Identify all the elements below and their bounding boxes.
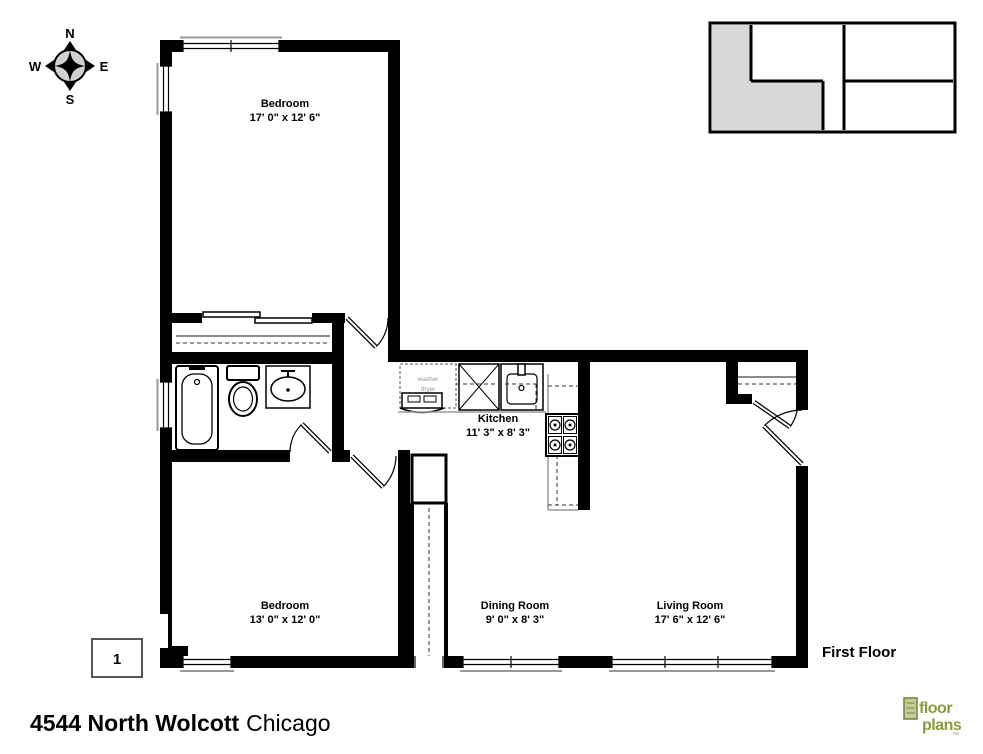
logo-word-floor: floor <box>919 700 952 717</box>
window-living-bottom <box>609 656 775 671</box>
doors <box>290 318 802 487</box>
door-living-closet <box>754 402 798 427</box>
room-label-living: Living Room 17' 6" x 12' 6" <box>655 600 726 626</box>
plan-title: 4544 North WolcottChicago <box>30 710 331 736</box>
floor-label: First Floor <box>822 644 896 661</box>
svg-text:17' 0" x 12' 6": 17' 0" x 12' 6" <box>250 112 321 124</box>
plan-address: 4544 North Wolcott <box>30 710 239 736</box>
page-number: 1 <box>113 651 121 668</box>
svg-text:Bedroom: Bedroom <box>261 98 310 110</box>
compass-arrow-north <box>64 41 76 50</box>
bathroom-fixtures <box>176 365 310 450</box>
wall-hall-stub <box>332 450 350 462</box>
compass-label-s: S <box>66 92 75 107</box>
floorplan-drawing: N S W E <box>0 0 983 754</box>
room-label-dining: Dining Room 9' 0" x 8' 3" <box>481 600 550 626</box>
door-bathroom <box>290 424 330 452</box>
sliding-door-panel <box>203 312 260 317</box>
dryer-label: dryer <box>421 386 437 393</box>
door-bedroom1 <box>347 318 388 347</box>
svg-text:9' 0" x 8' 3": 9' 0" x 8' 3" <box>486 614 544 626</box>
door-entry <box>764 410 802 464</box>
wall-right-upper <box>796 350 808 410</box>
svg-text:Bedroom: Bedroom <box>261 600 310 612</box>
refrigerator <box>459 364 499 410</box>
wall-bedroom1-right <box>388 40 400 362</box>
room-label-bedroom2: Bedroom 13' 0" x 12' 0" <box>250 600 321 626</box>
room-label-kitchen: Kitchen 11' 3" x 8' 3" <box>466 413 530 439</box>
wall-bedroom2-right <box>398 450 410 668</box>
window-bathroom-left <box>158 379 173 431</box>
svg-text:Living Room: Living Room <box>657 600 724 612</box>
wall-bathroom-top <box>172 352 344 364</box>
hall-closet <box>412 455 446 503</box>
window-bedroom2-bottom <box>180 656 234 671</box>
room-label-bedroom1: Bedroom 17' 0" x 12' 6" <box>250 98 321 124</box>
wall-left-slit <box>160 614 168 648</box>
compass-label-e: E <box>100 59 109 74</box>
page-number-box: 1 <box>92 639 142 677</box>
closet-bottom-gap <box>414 656 444 668</box>
compass-arrow-south <box>64 82 76 91</box>
walls <box>160 40 808 668</box>
plan-city: Chicago <box>246 710 330 736</box>
closet-thin-wall <box>444 503 448 656</box>
wall-right-lower <box>796 466 808 668</box>
logo-trademark: ™ <box>952 732 959 739</box>
kitchen-sink <box>501 364 543 410</box>
floorplans-logo: floor plans ™ <box>904 698 962 739</box>
window-dining-bottom <box>460 656 562 671</box>
wall-closet-top-left <box>172 313 202 323</box>
closet-thin-wall <box>410 503 414 656</box>
front-load-appliance <box>400 393 444 413</box>
door-bedroom2 <box>352 456 396 487</box>
wall-top-kitchen-living <box>400 350 808 362</box>
toilet <box>227 366 259 416</box>
wall-living-closet-bottom <box>726 394 752 404</box>
washer-label: washer <box>417 376 440 383</box>
wall-bathroom-right <box>332 313 344 462</box>
stove <box>546 414 579 456</box>
bathroom-sink <box>266 366 310 408</box>
sliding-door-panel <box>255 318 312 323</box>
bathtub <box>176 365 218 450</box>
compass-arrow-east <box>86 60 95 72</box>
svg-text:13' 0" x 12' 0": 13' 0" x 12' 0" <box>250 614 321 626</box>
compass-label-n: N <box>65 26 74 41</box>
wall-left-exterior <box>160 40 172 668</box>
svg-text:Kitchen: Kitchen <box>478 413 519 425</box>
compass-arrow-west <box>45 60 54 72</box>
svg-text:17' 6" x 12' 6": 17' 6" x 12' 6" <box>655 614 726 626</box>
window-bedroom1-top <box>180 38 282 53</box>
window-bedroom1-left <box>158 63 173 115</box>
svg-text:Dining Room: Dining Room <box>481 600 550 612</box>
svg-text:11' 3" x 8' 3": 11' 3" x 8' 3" <box>466 427 530 439</box>
compass-rose: N S W E <box>29 26 109 107</box>
floorplan-page: N S W E <box>0 0 983 754</box>
wall-bathroom-bottom <box>160 450 290 462</box>
key-plan <box>710 23 955 132</box>
compass-label-w: W <box>29 59 42 74</box>
